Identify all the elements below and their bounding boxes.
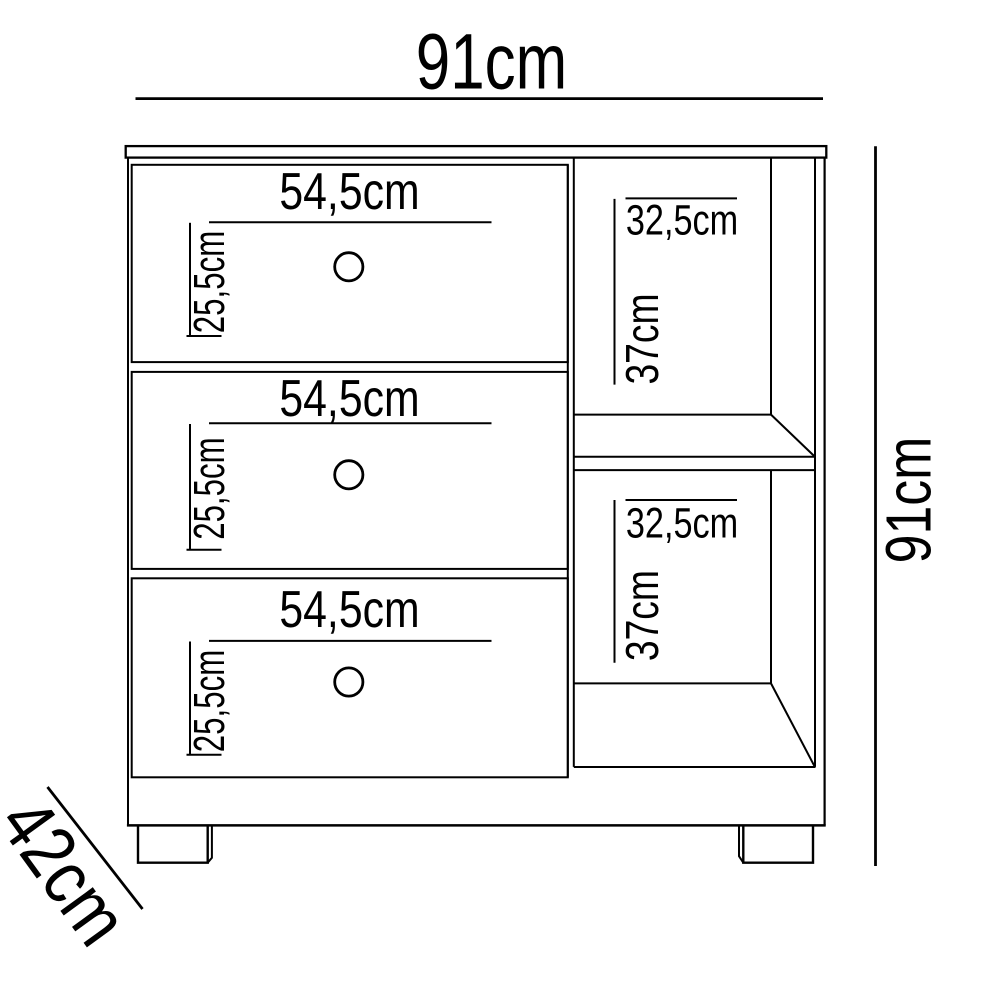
svg-text:91cm: 91cm: [416, 18, 567, 106]
svg-text:32,5cm: 32,5cm: [626, 500, 738, 547]
svg-text:54,5cm: 54,5cm: [279, 163, 419, 221]
svg-text:25,5cm: 25,5cm: [186, 650, 234, 752]
svg-text:91cm: 91cm: [873, 437, 944, 564]
svg-text:25,5cm: 25,5cm: [186, 437, 234, 539]
svg-text:37cm: 37cm: [616, 293, 668, 384]
svg-text:54,5cm: 54,5cm: [279, 370, 419, 428]
svg-text:25,5cm: 25,5cm: [186, 231, 234, 333]
svg-text:54,5cm: 54,5cm: [279, 581, 419, 639]
svg-text:32,5cm: 32,5cm: [626, 197, 738, 244]
svg-text:37cm: 37cm: [616, 570, 668, 661]
